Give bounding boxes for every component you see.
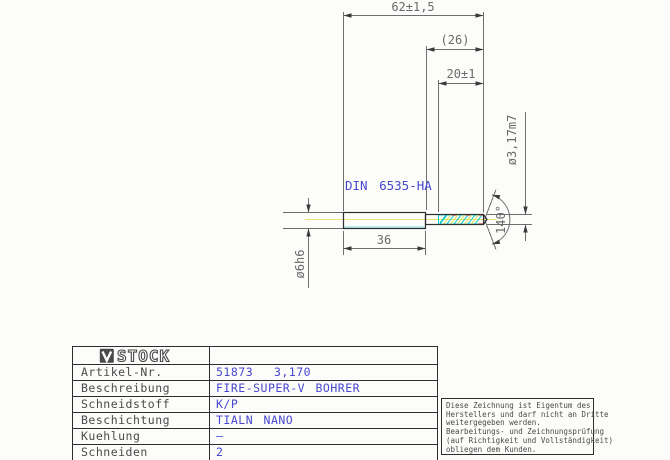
dim-shank-length: 36: [377, 233, 391, 247]
extension-lines: [283, 12, 532, 288]
table-row: Beschreibung FIRE-SUPER-V BOHRER: [73, 380, 437, 396]
shank-outline: [344, 213, 426, 229]
row-label: Beschreibung: [73, 381, 210, 396]
drill-technical-drawing: 62±1,5 (26) 20±1 36 ø3,17m7 ø6h6 140° DI…: [0, 0, 670, 345]
title-block-table: STOCK Artikel-Nr. 51873 3,170 Beschreibu…: [72, 346, 438, 460]
row-label: Kuehlung: [73, 429, 210, 444]
table-row: Schneidstoff K/P: [73, 396, 437, 412]
stock-logo-text: STOCK: [117, 348, 170, 364]
stock-logo: STOCK: [99, 348, 203, 364]
row-value: 51873 3,170: [210, 365, 437, 380]
row-value: –: [210, 429, 437, 444]
row-value: K/P: [210, 397, 437, 412]
dim-ref-length: (26): [441, 33, 470, 47]
flute-spiral-pattern: [344, 215, 484, 227]
table-row: Beschichtung TIALN NANO: [73, 412, 437, 428]
table-row: Schneiden 2: [73, 444, 437, 460]
dim-shank-diameter: ø6h6: [293, 250, 307, 279]
dim-point-angle: 140°: [494, 205, 508, 234]
drill-contour: [344, 213, 488, 229]
drawing-sheet: 62±1,5 (26) 20±1 36 ø3,17m7 ø6h6 140° DI…: [0, 0, 670, 460]
dim-flute-length: 20±1: [447, 67, 476, 81]
dim-flute-diameter: ø3,17m7: [505, 115, 519, 166]
shank-norm-label: DIN 6535-HA: [345, 178, 432, 193]
table-row: Kuehlung –: [73, 428, 437, 444]
row-label: Beschichtung: [73, 413, 210, 428]
table-row-logo: STOCK: [73, 347, 437, 364]
logo-cell: STOCK: [73, 347, 210, 364]
table-row: Artikel-Nr. 51873 3,170: [73, 364, 437, 380]
row-value: FIRE-SUPER-V BOHRER: [210, 381, 437, 396]
row-label: Schneiden: [73, 445, 210, 460]
dim-overall-length: 62±1,5: [391, 0, 434, 14]
row-value: 2: [210, 445, 437, 460]
row-value: TIALN NANO: [210, 413, 437, 428]
row-label: Schneidstoff: [73, 397, 210, 412]
notice-line: obliegen dem Kunden.: [446, 446, 593, 455]
row-label: Artikel-Nr.: [73, 365, 210, 380]
ownership-notice-box: Diese Zeichnung ist Eigentum des Herstel…: [441, 398, 594, 455]
logo-row-spacer: [210, 347, 437, 364]
